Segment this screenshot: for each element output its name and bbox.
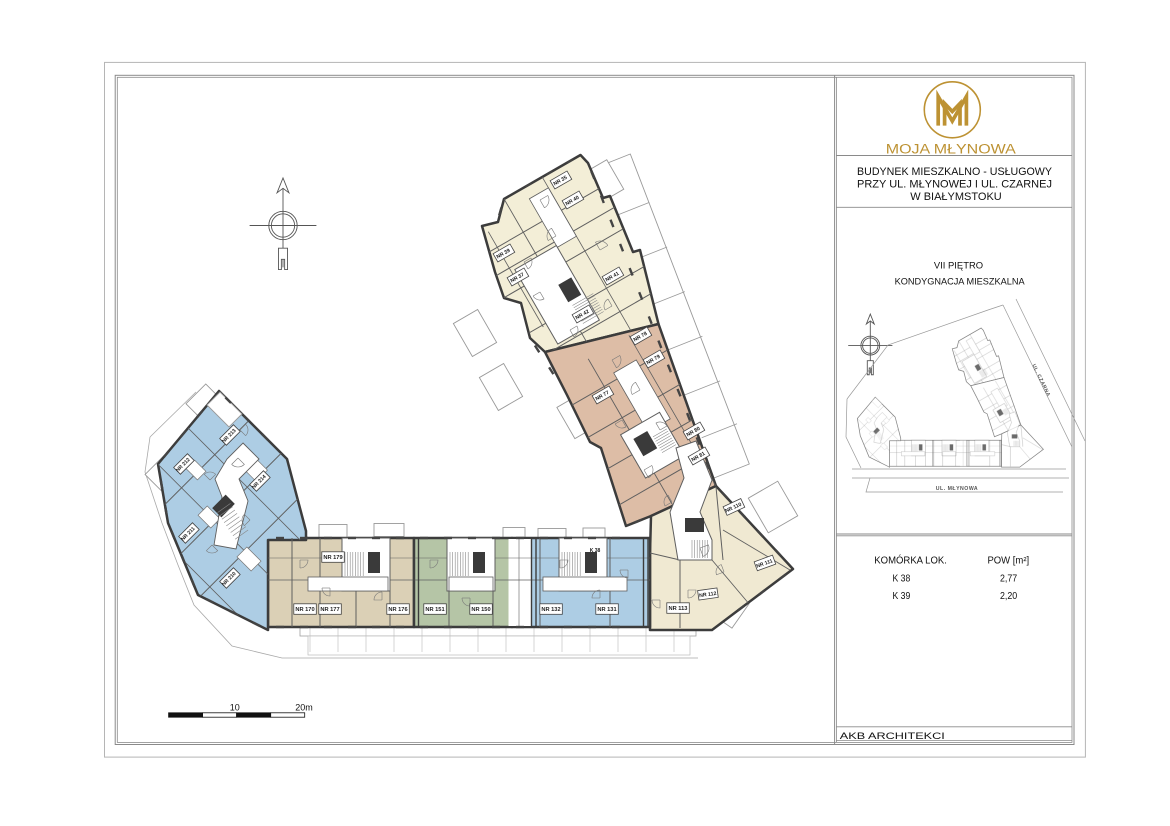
svg-text:VII PIĘTRO: VII PIĘTRO xyxy=(934,261,983,271)
svg-text:PRZY UL. MŁYNOWEJ I UL. CZARNE: PRZY UL. MŁYNOWEJ I UL. CZARNEJ xyxy=(857,179,1052,191)
svg-text:2,20: 2,20 xyxy=(1000,591,1018,602)
svg-text:NR 113: NR 113 xyxy=(669,606,688,612)
svg-text:K 38: K 38 xyxy=(590,548,601,554)
svg-text:K 39: K 39 xyxy=(893,591,911,602)
svg-text:KOMÓRKA LOK.: KOMÓRKA LOK. xyxy=(874,555,947,566)
svg-text:UL. MŁYNOWA: UL. MŁYNOWA xyxy=(936,486,978,492)
svg-text:NR 177: NR 177 xyxy=(320,607,339,613)
svg-text:NR 170: NR 170 xyxy=(295,607,314,613)
svg-text:NR 151: NR 151 xyxy=(425,607,444,613)
svg-text:NR 176: NR 176 xyxy=(388,607,407,613)
svg-text:NR 150: NR 150 xyxy=(471,607,490,613)
svg-text:W BIAŁYMSTOKU: W BIAŁYMSTOKU xyxy=(910,191,1002,203)
svg-text:2,77: 2,77 xyxy=(1000,573,1017,584)
svg-text:AKB ARCHITEKCI: AKB ARCHITEKCI xyxy=(840,731,945,741)
svg-text:20m: 20m xyxy=(295,702,313,712)
svg-text:POW [m²]: POW [m²] xyxy=(987,555,1029,566)
svg-text:K 38: K 38 xyxy=(893,573,911,584)
svg-text:KONDYGNACJA MIESZKALNA: KONDYGNACJA MIESZKALNA xyxy=(895,277,1026,287)
svg-text:NR 132: NR 132 xyxy=(541,607,560,613)
svg-text:NR 179: NR 179 xyxy=(323,555,342,561)
svg-text:10: 10 xyxy=(230,702,240,712)
svg-text:NR 131: NR 131 xyxy=(597,607,616,613)
svg-text:BUDYNEK MIESZKALNO - USŁUGOWY: BUDYNEK MIESZKALNO - USŁUGOWY xyxy=(857,166,1052,178)
